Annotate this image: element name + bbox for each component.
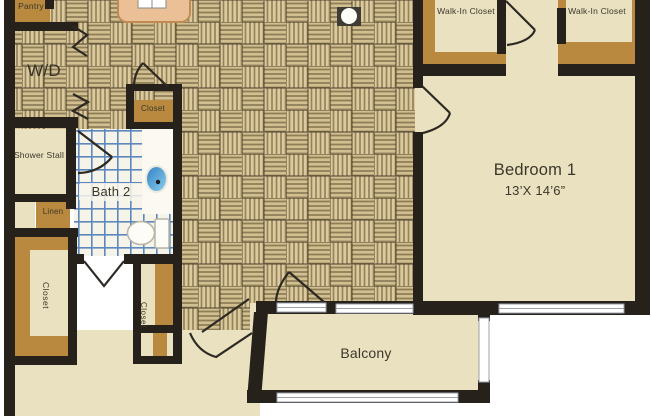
toilet-bowl [128,222,155,245]
wall-outer-left [4,0,15,416]
floor-plan: Pantry W/D Walk-In Closet Walk-In Closet… [0,0,652,416]
closet-lower-floor2 [167,333,173,356]
closet-lower-fill [153,333,167,356]
walk-in-closet-2-label: Walk-In Closet [563,6,631,16]
bath2-label: Bath 2 [79,183,143,201]
wall-closet-left-bottom [4,356,77,365]
wall-closet-left-right [68,228,77,364]
shower-floor [10,129,68,195]
toilet-tank [155,219,169,248]
hallway-floor [178,280,262,333]
bedroom1-label: Bedroom 1 13’X 14’6” [442,161,628,198]
bedroom1-dimensions: 13’X 14’6” [442,183,628,199]
closet-left-label: Closet [41,266,51,326]
wall-closet-narrow-bottom [133,356,182,364]
wall-walkin2-bottom [558,64,650,76]
wall-shower-bottom [4,194,76,202]
balcony-side-screen [479,318,489,382]
closet-narrow-label: Closet [139,289,148,341]
wall-hallcloset-top [126,84,182,91]
ceiling-light [341,8,357,24]
closet-narrow-fill [155,262,173,325]
wall-bedroom-left-lower [413,132,423,304]
hall-closet-label: Closet [131,104,175,114]
linen-label: Linen [35,207,71,217]
wall-bath-bottom-left [74,254,84,264]
shower-stall-label: Shower Stall [10,150,68,160]
wall-walkin1-bottom [413,64,506,76]
bath-sink [146,166,167,192]
pantry-label: Pantry [11,1,51,11]
wall-outer-right [635,0,650,315]
wall-hallcloset-bottom [126,122,182,129]
wall-linen-bottom [4,228,78,237]
walk-in-closet-1-label: Walk-In Closet [432,6,500,16]
wall-pantry-bottom [4,22,78,31]
wall-bath-bottom-right [124,254,182,264]
bedroom1-name: Bedroom 1 [442,161,628,181]
balcony-label: Balcony [320,345,412,362]
washer-dryer-label: W/D [17,61,71,81]
wall-balcony-post-bottom [478,380,490,403]
bath-sink-drain [156,180,160,184]
